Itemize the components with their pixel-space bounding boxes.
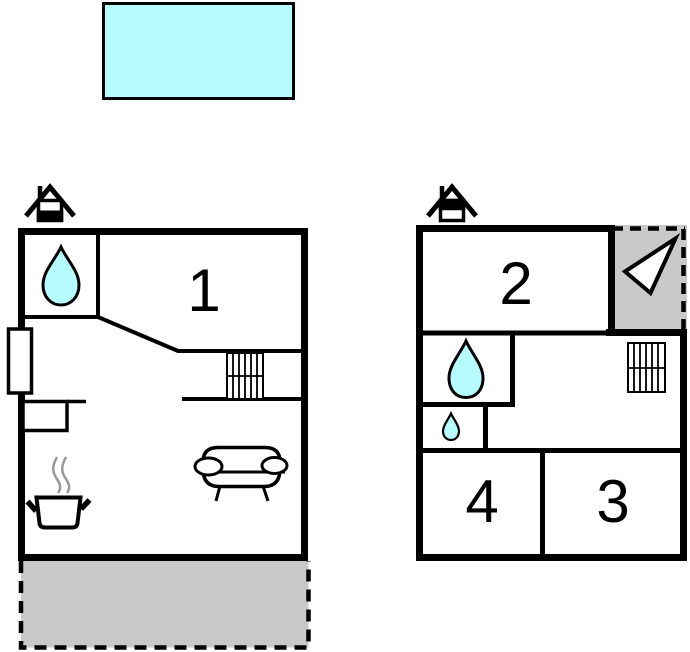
sofa-armrest-left — [195, 458, 222, 475]
window — [9, 329, 32, 393]
floor-plan-canvas: 1 2 3 4 — [0, 0, 690, 652]
ground-floor-plan — [9, 186, 309, 648]
terrace — [21, 561, 309, 648]
house-lower-half — [37, 211, 64, 223]
sofa-armrest-right — [262, 458, 287, 474]
floor-plan-drawing — [0, 0, 690, 652]
room-label-2: 2 — [499, 254, 532, 314]
upper-floor-house-icon — [428, 186, 476, 221]
counter-rect — [23, 402, 67, 431]
ground-floor-house-icon — [26, 186, 74, 222]
pool-rect — [104, 4, 294, 99]
room-label-4: 4 — [465, 472, 498, 532]
pot-body — [37, 498, 81, 528]
room-label-1: 1 — [187, 261, 220, 321]
house-upper-half — [439, 199, 466, 211]
stairs-icon — [227, 353, 263, 399]
stairs-icon-upper — [628, 343, 665, 392]
swimming-pool — [104, 4, 294, 99]
room-label-3: 3 — [596, 472, 629, 532]
upper-floor-plan — [416, 186, 687, 562]
